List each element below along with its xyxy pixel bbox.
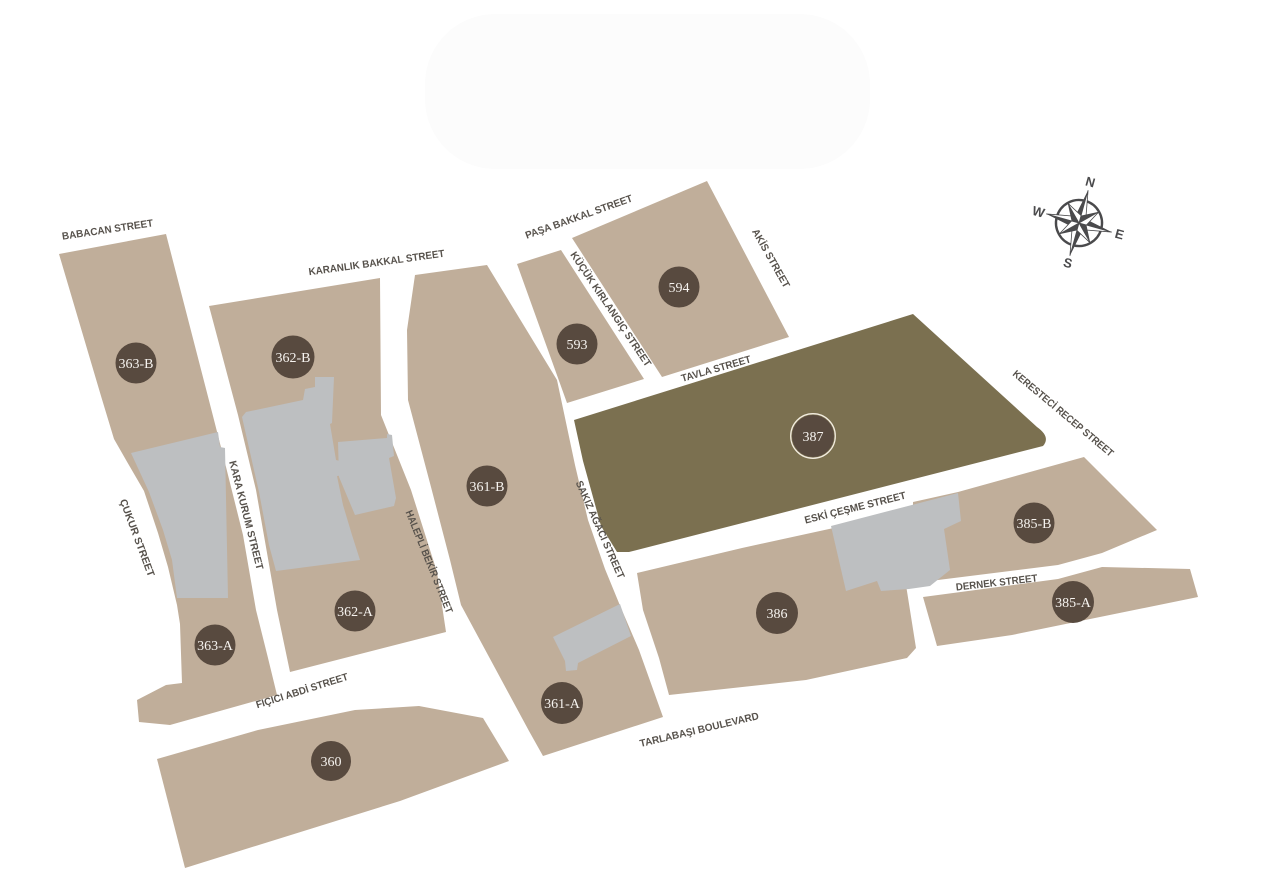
- svg-text:387: 387: [803, 430, 824, 445]
- svg-text:594: 594: [669, 281, 690, 296]
- svg-text:363-A: 363-A: [197, 639, 234, 654]
- svg-text:385-B: 385-B: [1017, 517, 1052, 532]
- svg-text:386: 386: [767, 607, 788, 622]
- svg-text:593: 593: [567, 338, 588, 353]
- svg-text:362-A: 362-A: [337, 605, 374, 620]
- svg-text:385-A: 385-A: [1055, 596, 1092, 611]
- svg-text:363-B: 363-B: [119, 357, 154, 372]
- svg-text:361-B: 361-B: [470, 480, 505, 495]
- svg-text:361-A: 361-A: [544, 697, 581, 712]
- svg-text:360: 360: [321, 755, 342, 770]
- svg-text:362-B: 362-B: [276, 351, 311, 366]
